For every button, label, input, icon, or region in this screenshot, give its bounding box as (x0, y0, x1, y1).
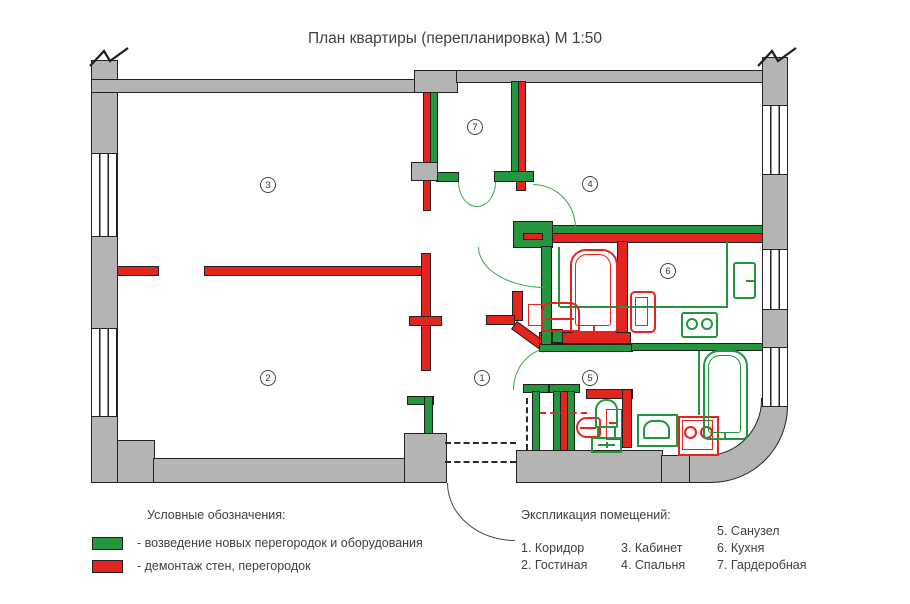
red-wall-rooms-2-3 (204, 266, 428, 276)
wall-top-step-block (414, 70, 458, 93)
room5-partition-line (698, 351, 700, 415)
explication-col3-item3: 7. Гардеробная (717, 558, 807, 572)
entrance-dashed-top (445, 442, 516, 444)
wall-bottom-right (516, 450, 663, 483)
wall-left-upper (91, 92, 118, 154)
legend-heading: Условные обозначения: (147, 508, 286, 522)
wall-right-pier-2 (762, 309, 788, 349)
explication-col3-item2: 6. Кухня (717, 541, 764, 555)
room-label-7: 7 (467, 119, 483, 135)
green-strip-corridor-a (532, 391, 540, 451)
kitchen-sink-bowl-left (686, 318, 698, 330)
explication-col2-item2: 4. Спальня (621, 558, 685, 572)
explication-col1-item1: 1. Коридор (521, 541, 584, 555)
toilet-new (595, 399, 618, 428)
door-arc-oldbath (478, 247, 546, 288)
toilet-old (630, 291, 656, 333)
explication-col2-item1: 3. Кабинет (621, 541, 682, 555)
door-arc-entrance (447, 483, 515, 541)
bathtub-new-drain-tick (724, 432, 726, 440)
door-arc-room5 (513, 347, 553, 390)
green-band-room5-top (631, 343, 763, 351)
green-strip-corridor-c (567, 391, 575, 451)
red-stub-room7-bottom (516, 181, 526, 191)
wall-entrance-left-block (404, 433, 447, 483)
red-wall-vertical-divider (421, 253, 431, 371)
bathtub-old-drain-tick (593, 325, 595, 333)
green-partition-entrance-v (424, 396, 433, 434)
wall-break-icon-right (754, 46, 800, 70)
sink-old-room5-line (580, 427, 596, 429)
kitchen-counter-vertical-line (726, 242, 728, 308)
green-strip-room7-right (511, 81, 519, 173)
legend-item-demolition: - демонтаж стен, перегородок (137, 559, 311, 573)
legend-item-new: - возведение новых перегородок и оборудо… (137, 536, 423, 550)
fridge-handle-line (746, 280, 755, 282)
bathtub-new-inner (708, 355, 741, 433)
kitchen-sink-bowl-right (701, 318, 713, 330)
wall-bottom-step-block (117, 440, 155, 483)
shower-tray-new (591, 437, 622, 453)
window-right-middle (762, 249, 788, 310)
washing-machine-drum-left (684, 426, 697, 439)
window-right-lower (762, 347, 788, 407)
door-arc-room7-left-leaf (458, 182, 477, 207)
red-strip-room7-left-lower (423, 180, 431, 211)
toilet-old-inner (635, 297, 648, 326)
room-label-4: 4 (582, 176, 598, 192)
corridor-dashed-line (526, 398, 528, 450)
red-wall-cross-stub (409, 316, 442, 326)
door-arc-room7-right-leaf (477, 182, 496, 207)
room-label-6: 6 (660, 263, 676, 279)
window-left-upper (91, 153, 118, 237)
legend-swatch-new (92, 537, 123, 550)
bathtub-new (703, 350, 748, 440)
room-label-2: 2 (260, 370, 276, 386)
kitchen-sink-new (681, 312, 718, 338)
room-label-5: 5 (582, 370, 598, 386)
window-left-lower (91, 328, 118, 417)
kitchen-door-leaf-line (558, 247, 560, 307)
wall-top-main (91, 79, 416, 93)
red-wall-center-arm (486, 315, 515, 325)
red-strip-room7-right (518, 81, 526, 173)
fridge-new (733, 262, 756, 299)
room-label-1: 1 (474, 370, 490, 386)
bathtub-old-inner (575, 254, 611, 326)
door-arc-room4 (533, 184, 576, 228)
explication-col3-item1: 5. Санузел (717, 524, 780, 538)
floor-plan-sheet: План квартиры (перепланировка) М 1:50 (0, 0, 910, 604)
wall-bottom-right-notch (661, 455, 691, 483)
demolition-dashed-line (540, 412, 587, 414)
pier-room7 (411, 162, 438, 181)
window-right-upper (762, 105, 788, 175)
red-wall-stub-left (117, 266, 159, 276)
wall-bottom-main (153, 458, 406, 483)
red-wall-room5-vertical (622, 389, 632, 448)
green-band-oldbath-bottom (539, 344, 633, 352)
legend-swatch-demolition (92, 560, 123, 573)
washbasin-new (637, 414, 678, 447)
red-wall-oldbath-divider (617, 241, 628, 334)
entrance-dashed-bottom (445, 461, 516, 463)
explication-heading: Экспликация помещений: (521, 508, 671, 522)
green-strip-room7-left (430, 92, 438, 164)
green-tbar-room7 (494, 171, 534, 182)
sink-old-b (541, 302, 580, 332)
wall-left-lower (91, 416, 118, 483)
wall-top-right (456, 70, 763, 83)
wall-right-pier-1 (762, 174, 788, 251)
red-dash-kitchen-door (523, 233, 543, 240)
wall-left-pier (91, 236, 118, 329)
green-stub-room7-bottom-left (436, 172, 459, 182)
wall-break-icon-left (86, 46, 132, 70)
explication-col1-item2: 2. Гостиная (521, 558, 587, 572)
room-label-3: 3 (260, 177, 276, 193)
washbasin-new-bowl (643, 420, 670, 439)
sink-old-b-line (545, 318, 574, 320)
